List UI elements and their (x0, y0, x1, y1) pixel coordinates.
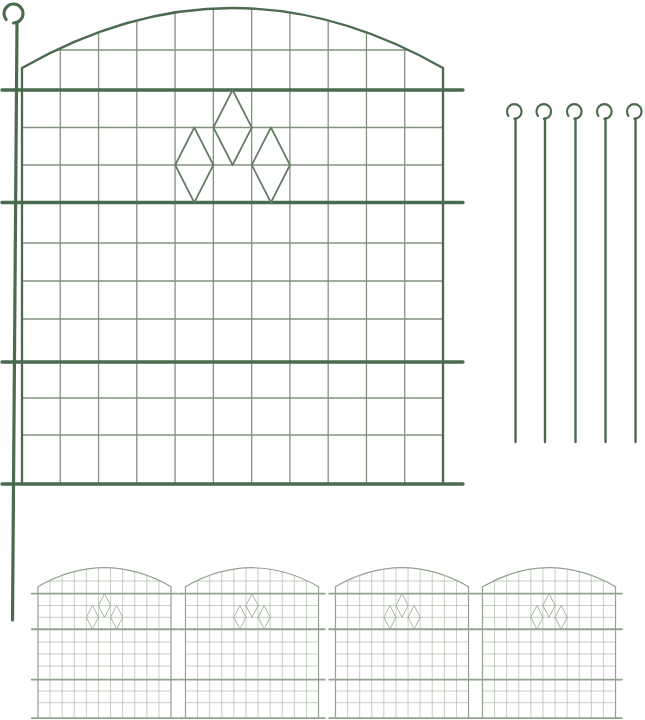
stake-loop-icon (597, 104, 612, 119)
small-fence-panel-1 (32, 565, 178, 718)
small-fence-panel-2 (179, 565, 325, 718)
wire-grid (335, 565, 468, 718)
wire-grid (482, 565, 615, 718)
stake-loop-icon (627, 104, 642, 119)
wire-grid (38, 565, 171, 718)
arched-frame (185, 568, 318, 718)
small-fence-panel-3 (329, 565, 475, 718)
anchor-stake-2 (537, 104, 552, 442)
ground-stake (4, 4, 23, 620)
product-image (0, 0, 645, 720)
anchor-stake-4 (597, 104, 612, 442)
anchor-stake-5 (627, 104, 642, 442)
stake-loop-icon (507, 104, 522, 119)
stake-loop-icon (537, 104, 552, 119)
main-fence-panel (2, 0, 463, 484)
wire-grid (22, 0, 443, 484)
arched-frame (335, 568, 468, 718)
wire-grid (185, 565, 318, 718)
panel-row-preview (32, 565, 622, 718)
arched-frame (482, 568, 615, 718)
arched-frame (38, 568, 171, 718)
anchor-stake-1 (507, 104, 522, 442)
stake-loop-icon (567, 104, 582, 119)
stake-rod (13, 23, 18, 620)
small-fence-panel-4 (476, 565, 622, 718)
stake-loop-icon (4, 4, 23, 23)
anchor-stake-set (507, 104, 642, 442)
arched-frame (22, 8, 443, 484)
anchor-stake-3 (567, 104, 582, 442)
fence-product-scene (0, 0, 645, 720)
